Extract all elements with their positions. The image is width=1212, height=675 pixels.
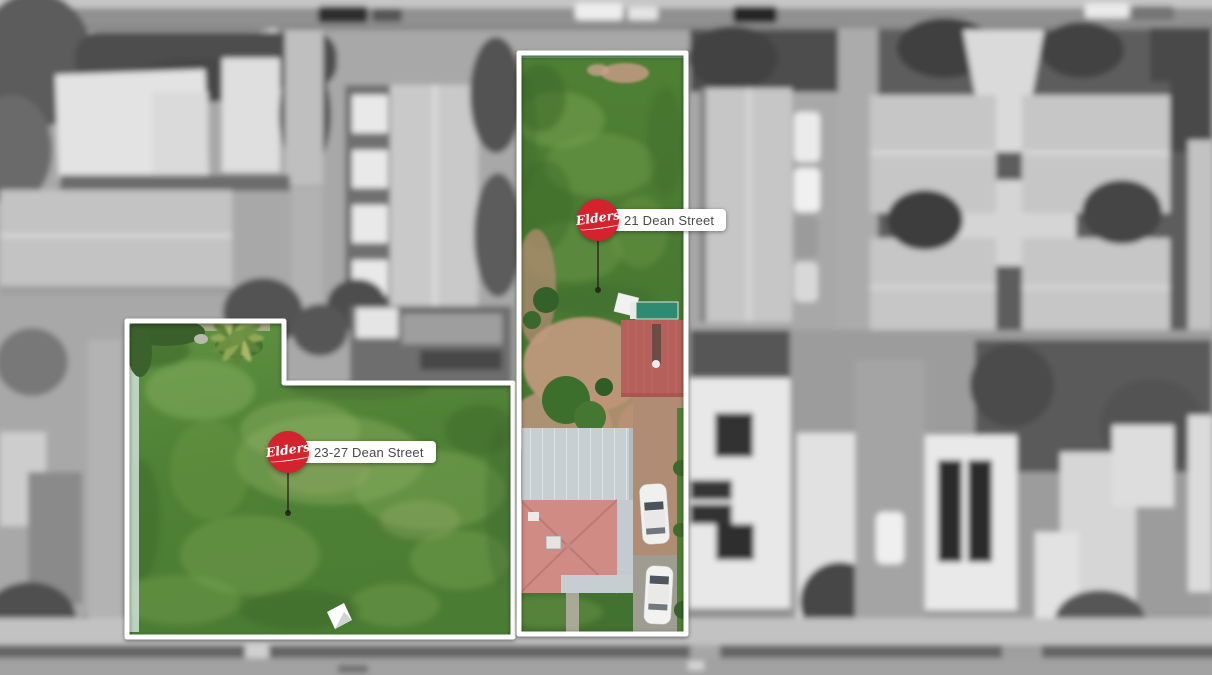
unit-roof [352,150,388,188]
tree [474,173,522,297]
roof-ridge [1022,150,1170,156]
driveway [285,30,323,185]
roof-ridge [746,88,752,322]
building-shadow [420,350,502,370]
driveway [855,360,925,645]
tree [470,37,522,153]
parked-car [575,3,623,20]
tree [1082,180,1162,244]
solar-panels [968,460,992,562]
unit-roof [352,205,388,243]
bushes [128,327,152,377]
roof-vent [528,512,539,521]
bush [595,378,613,396]
car [639,483,670,545]
tree [970,343,1054,427]
building-roof [0,190,232,290]
solar-panels [715,413,753,457]
parked-car [1085,3,1129,18]
elders-logo-pin: Elders [577,199,619,241]
aerial-property-photo: 21 Dean Street Elders 23-27 Dean Street … [0,0,1212,675]
building-roof [222,58,280,172]
tree [292,304,348,356]
shed [621,320,684,397]
shed-vent [652,324,661,364]
pool [636,302,678,319]
tree [887,190,963,250]
parked-car [628,7,658,20]
rock [194,334,208,344]
house [520,428,633,593]
parcel-21-dean-street [493,53,692,634]
building-roof [1188,415,1212,592]
building-roof [152,92,208,174]
parked-car [794,112,820,162]
tree [1040,22,1124,78]
building-roof [402,314,502,344]
driveway [88,340,122,632]
parked-car [794,216,818,258]
tree-row [690,330,790,380]
roof-ridge [1022,285,1170,290]
hedge [60,175,290,191]
address-label: 23-27 Dean Street [297,441,436,463]
tree [1170,30,1212,152]
solar-panels [716,524,754,560]
parked-car [733,6,777,23]
roof-ridge [870,285,996,290]
elders-brand-text: Elders [265,441,311,464]
chimney [546,536,561,549]
marker-stem [597,239,599,289]
solar-panels [690,480,732,500]
parked-car [876,512,904,564]
tree [688,26,778,90]
roof-ridge [870,150,996,156]
roof-edge [700,88,706,322]
aerial-scene [0,0,1212,675]
parked-car [372,8,402,22]
marker-stem-dot [595,287,601,293]
building-roof [1112,425,1174,507]
parked-car [1132,6,1174,20]
address-text: 23-27 Dean Street [314,445,424,460]
building-roof [356,308,398,338]
parked-car [794,168,820,212]
bottom-right-block [688,330,1212,650]
parked-car [318,6,368,23]
solar-panels [938,460,962,562]
unit-roof [352,95,388,133]
path [566,593,579,634]
marker-stem-dot [285,510,291,516]
bush [533,287,559,313]
elders-brand-text: Elders [575,209,621,232]
address-label: 21 Dean Street [607,209,726,231]
pool-deck [630,302,636,319]
roof-ridge [432,85,438,329]
elders-logo-pin: Elders [267,431,309,473]
solar-panels [690,504,732,524]
bush [523,311,541,329]
marker-stem [287,471,289,513]
car [644,565,674,624]
roof-ridge [0,233,232,238]
parked-car [794,262,818,302]
roof-edge [0,286,232,294]
address-text: 21 Dean Street [624,213,714,228]
